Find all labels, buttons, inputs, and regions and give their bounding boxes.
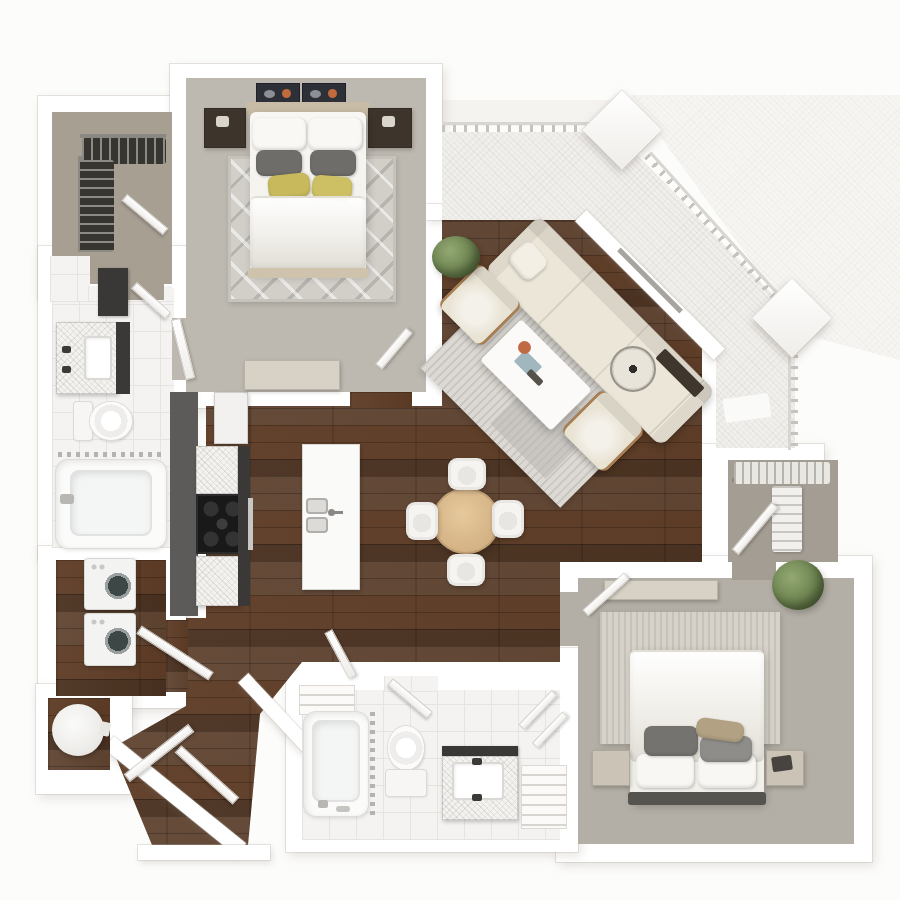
bedroom2-footboard bbox=[628, 792, 766, 805]
closet2-hanging-clothes bbox=[734, 462, 830, 484]
bathroom2-toilet-bowl bbox=[388, 726, 424, 770]
bathroom1-tub-faucet bbox=[60, 494, 74, 504]
bathroom2-mirror bbox=[442, 746, 518, 756]
kitchen-counter-lower bbox=[196, 556, 240, 606]
bedroom1-nightstand-west bbox=[204, 108, 246, 148]
bedroom1-pillow-white-1 bbox=[252, 118, 306, 150]
kitchen-feature-wall bbox=[170, 392, 198, 616]
bedroom1-lamp-west bbox=[216, 116, 229, 127]
bathroom1-vanity-cabinet bbox=[116, 322, 130, 394]
island-sink-basin-2 bbox=[306, 517, 328, 533]
bedroom1-lamp-east bbox=[382, 116, 395, 127]
bathroom2-tub-soap bbox=[336, 806, 350, 812]
bedroom1-pillow-gray-2 bbox=[310, 150, 356, 176]
bathroom1-nook-floor bbox=[50, 256, 90, 302]
bedroom2-pillow-white-1 bbox=[636, 754, 694, 788]
balcony-railing-top bbox=[442, 122, 602, 132]
bathroom2-faucet-2 bbox=[472, 794, 482, 801]
sofa-tray bbox=[610, 346, 656, 392]
closet1-clothes-left bbox=[80, 160, 114, 252]
balcony-railing-east bbox=[788, 344, 798, 450]
closet2-folded-stack bbox=[772, 486, 802, 552]
living-plant bbox=[432, 236, 480, 278]
coffee-table-candle bbox=[518, 341, 531, 354]
bathroom2-tub-faucet bbox=[318, 800, 328, 808]
bathroom2-tub-basin bbox=[312, 720, 360, 802]
bedroom1-pillow-gray-1 bbox=[256, 150, 302, 176]
bathroom1-mirror bbox=[98, 268, 128, 316]
dining-chair-west bbox=[406, 502, 438, 540]
island-faucet-arm bbox=[333, 511, 343, 514]
bathroom1-toilet-bowl bbox=[90, 402, 132, 440]
bathroom1-sink bbox=[84, 336, 112, 380]
bathroom1-faucet-2 bbox=[62, 366, 71, 373]
bathroom1-tub-basin bbox=[70, 470, 152, 536]
bedroom2-plant bbox=[772, 560, 824, 610]
bedroom1-duvet bbox=[250, 196, 366, 270]
entry-bottom-wall bbox=[138, 845, 270, 860]
dining-chair-east bbox=[492, 500, 524, 538]
dining-table bbox=[432, 488, 500, 554]
apartment-3d-floor-plan bbox=[0, 0, 900, 900]
linen-closet2-interior bbox=[522, 766, 566, 828]
kitchen-oven-handle bbox=[248, 498, 253, 550]
island-sink-basin-1 bbox=[306, 498, 328, 514]
opening-bedroom1-south bbox=[350, 392, 412, 408]
bedroom1-nightstand-east bbox=[368, 108, 412, 148]
kitchen-counter-upper bbox=[196, 446, 238, 494]
opening-bedroom2-west bbox=[560, 592, 580, 646]
water-heater bbox=[52, 704, 104, 756]
bedroom2-pillow-gray bbox=[644, 726, 698, 756]
bedroom2-nightstand-decor bbox=[771, 755, 793, 773]
bedroom1-dresser bbox=[244, 360, 340, 390]
hall-linen-shelves bbox=[300, 686, 354, 714]
bathroom2-curtain-rod bbox=[370, 712, 375, 816]
dryer bbox=[84, 613, 136, 666]
bathroom2-toilet-tank bbox=[386, 770, 426, 796]
kitchen-fridge bbox=[214, 392, 248, 444]
bedroom1-footboard bbox=[248, 268, 368, 278]
bathroom1-faucet-1 bbox=[62, 346, 71, 353]
bedroom2-nightstand-west bbox=[592, 750, 630, 786]
washer bbox=[84, 558, 136, 610]
bathroom1-curtain-rod bbox=[58, 452, 166, 457]
bathroom2-faucet-1 bbox=[472, 758, 482, 765]
dining-chair-south bbox=[447, 554, 485, 586]
bedroom1-pillow-white-2 bbox=[308, 118, 362, 150]
opening-closet2-south bbox=[732, 560, 776, 580]
dining-chair-north bbox=[448, 458, 486, 490]
